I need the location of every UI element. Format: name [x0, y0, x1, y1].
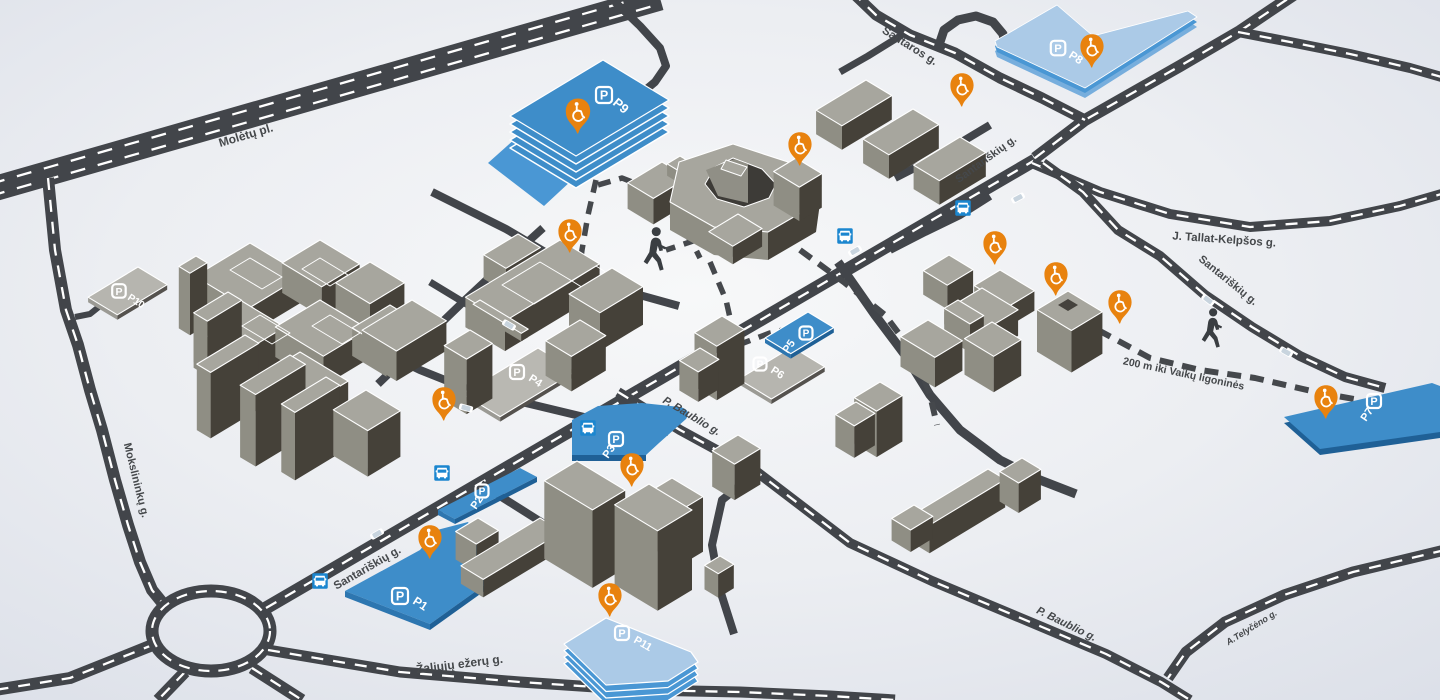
svg-text:P: P — [115, 286, 122, 298]
svg-text:P: P — [612, 434, 619, 446]
svg-text:P: P — [803, 329, 810, 340]
svg-text:P: P — [600, 89, 608, 103]
svg-text:P: P — [513, 367, 520, 379]
svg-text:P: P — [618, 628, 625, 640]
svg-text:P: P — [1054, 43, 1062, 55]
svg-text:P: P — [479, 487, 486, 498]
svg-text:P: P — [1370, 396, 1377, 408]
svg-text:P: P — [396, 590, 404, 604]
svg-text:P: P — [757, 360, 764, 371]
